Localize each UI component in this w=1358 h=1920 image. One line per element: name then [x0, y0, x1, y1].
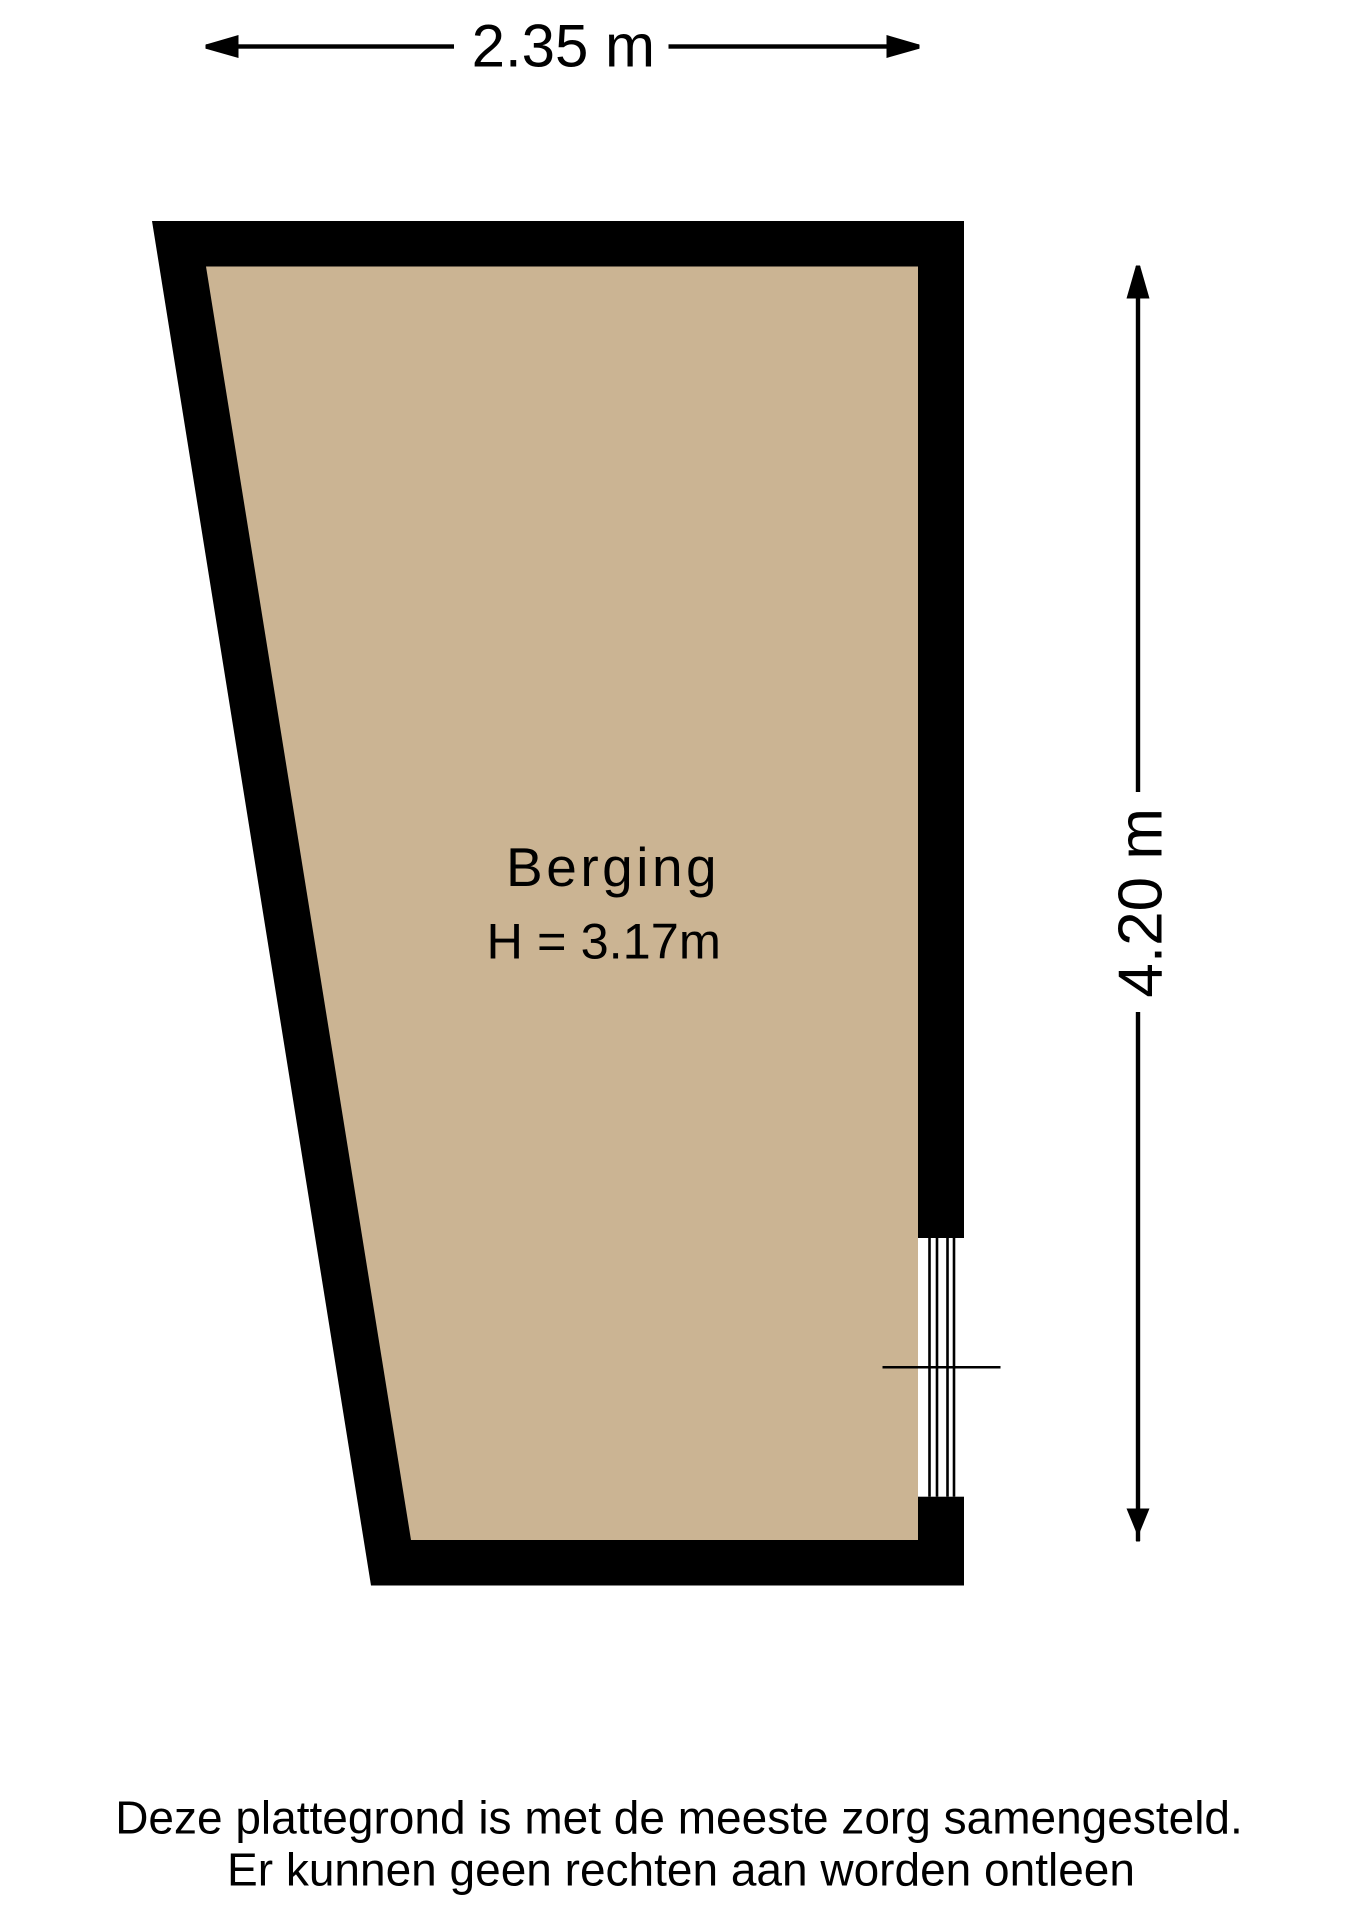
- svg-text:Deze plattegrond is met de mee: Deze plattegrond is met de meeste zorg s…: [115, 1792, 1243, 1844]
- svg-text:4.20 m: 4.20 m: [1107, 808, 1176, 998]
- svg-text:Berging: Berging: [506, 836, 720, 898]
- svg-text:H = 3.17m: H = 3.17m: [487, 913, 721, 970]
- svg-text:2.35 m: 2.35 m: [472, 13, 655, 80]
- svg-text:Er kunnen geen rechten aan wor: Er kunnen geen rechten aan worden ontlee…: [227, 1843, 1135, 1895]
